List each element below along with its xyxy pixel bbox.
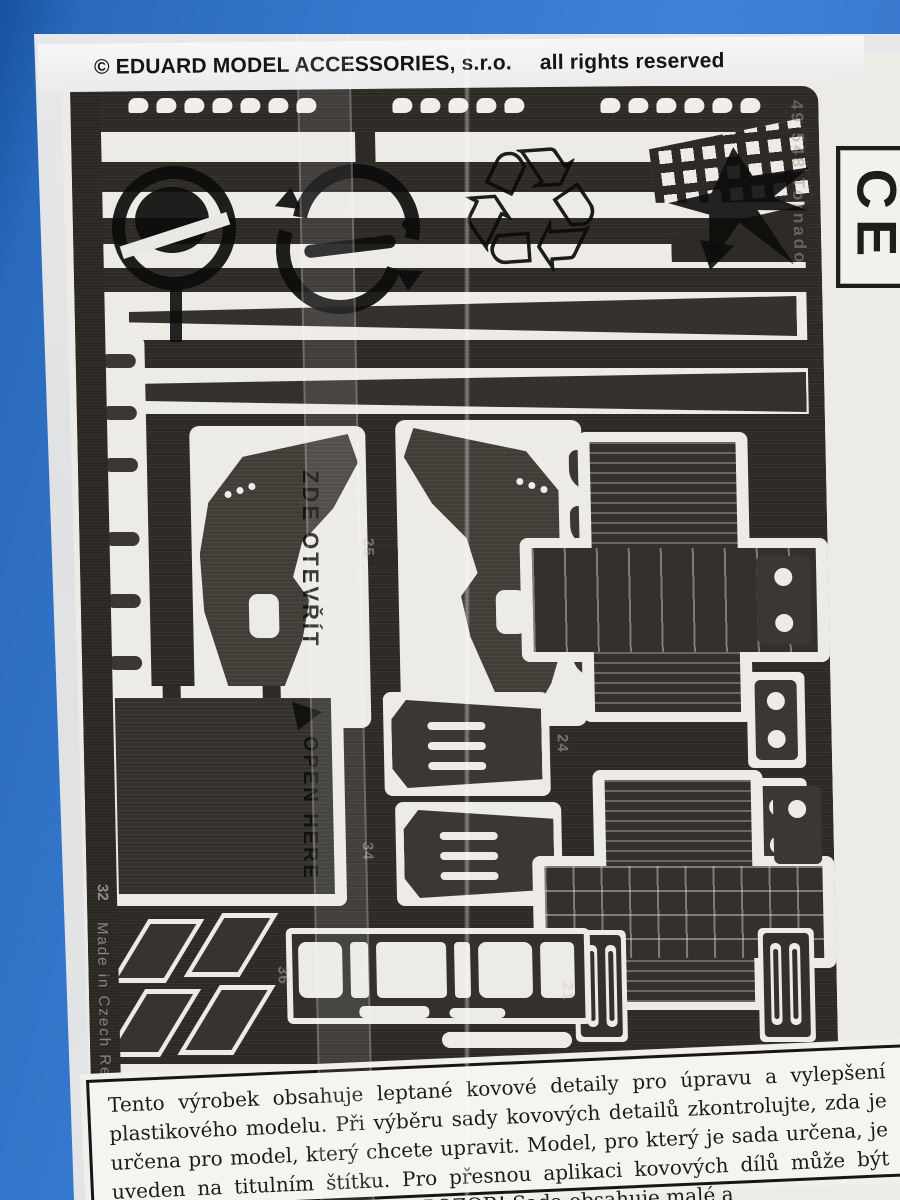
part-number-36: 36 xyxy=(274,966,291,985)
rivet-holes xyxy=(540,486,547,493)
rail-part-panel xyxy=(758,928,816,1042)
vent-slot xyxy=(427,722,485,730)
recycle-symbol-icon: ♲ xyxy=(446,121,615,307)
sprue-tab xyxy=(163,686,181,698)
bobbin-part xyxy=(754,680,798,760)
frame-opening xyxy=(376,942,447,998)
part-opening xyxy=(249,594,280,638)
sprue-tab xyxy=(355,132,376,162)
rights-text: all rights reserved xyxy=(540,49,725,75)
ink-dot xyxy=(402,220,411,229)
part-number-32: 32 xyxy=(94,884,111,901)
ce-mark-box: CE xyxy=(836,146,900,288)
copyright-strip: © EDUARD MODEL ACCESSORIES, s.r.o. all r… xyxy=(38,36,864,93)
vent-slot xyxy=(428,762,486,770)
angled-bracket-part xyxy=(192,918,271,972)
rail-slot xyxy=(605,945,618,1027)
angled-bracket-part xyxy=(112,994,193,1052)
sprue-tab xyxy=(263,686,281,698)
part-number-24: 24 xyxy=(554,734,571,753)
printed-stem-mark xyxy=(170,284,182,342)
bag-crease xyxy=(464,34,470,1200)
grommet-part xyxy=(773,786,823,864)
frame-opening xyxy=(478,942,533,998)
sprue-hole-row xyxy=(128,98,148,113)
rail-slot xyxy=(789,943,802,1025)
small-lever-parts xyxy=(102,354,136,368)
green-dot-icon xyxy=(112,166,236,290)
frame-tab xyxy=(449,1008,505,1018)
angled-bracket-part xyxy=(118,924,197,978)
ce-mark-text: CE xyxy=(845,168,900,266)
angled-parts-group xyxy=(107,916,286,1066)
vent-slot xyxy=(428,742,486,750)
angled-bracket-part xyxy=(185,990,267,1050)
rail-slot xyxy=(770,943,783,1025)
rail-part xyxy=(763,933,811,1037)
part-number-21: 21 xyxy=(559,982,576,1001)
photo-scene: © EDUARD MODEL ACCESSORIES, s.r.o. all r… xyxy=(0,0,900,1200)
bobbin-panel xyxy=(746,672,806,768)
rivet-holes xyxy=(224,491,231,498)
part-number-25: 25 xyxy=(359,538,376,557)
small-cutout xyxy=(442,1032,572,1048)
